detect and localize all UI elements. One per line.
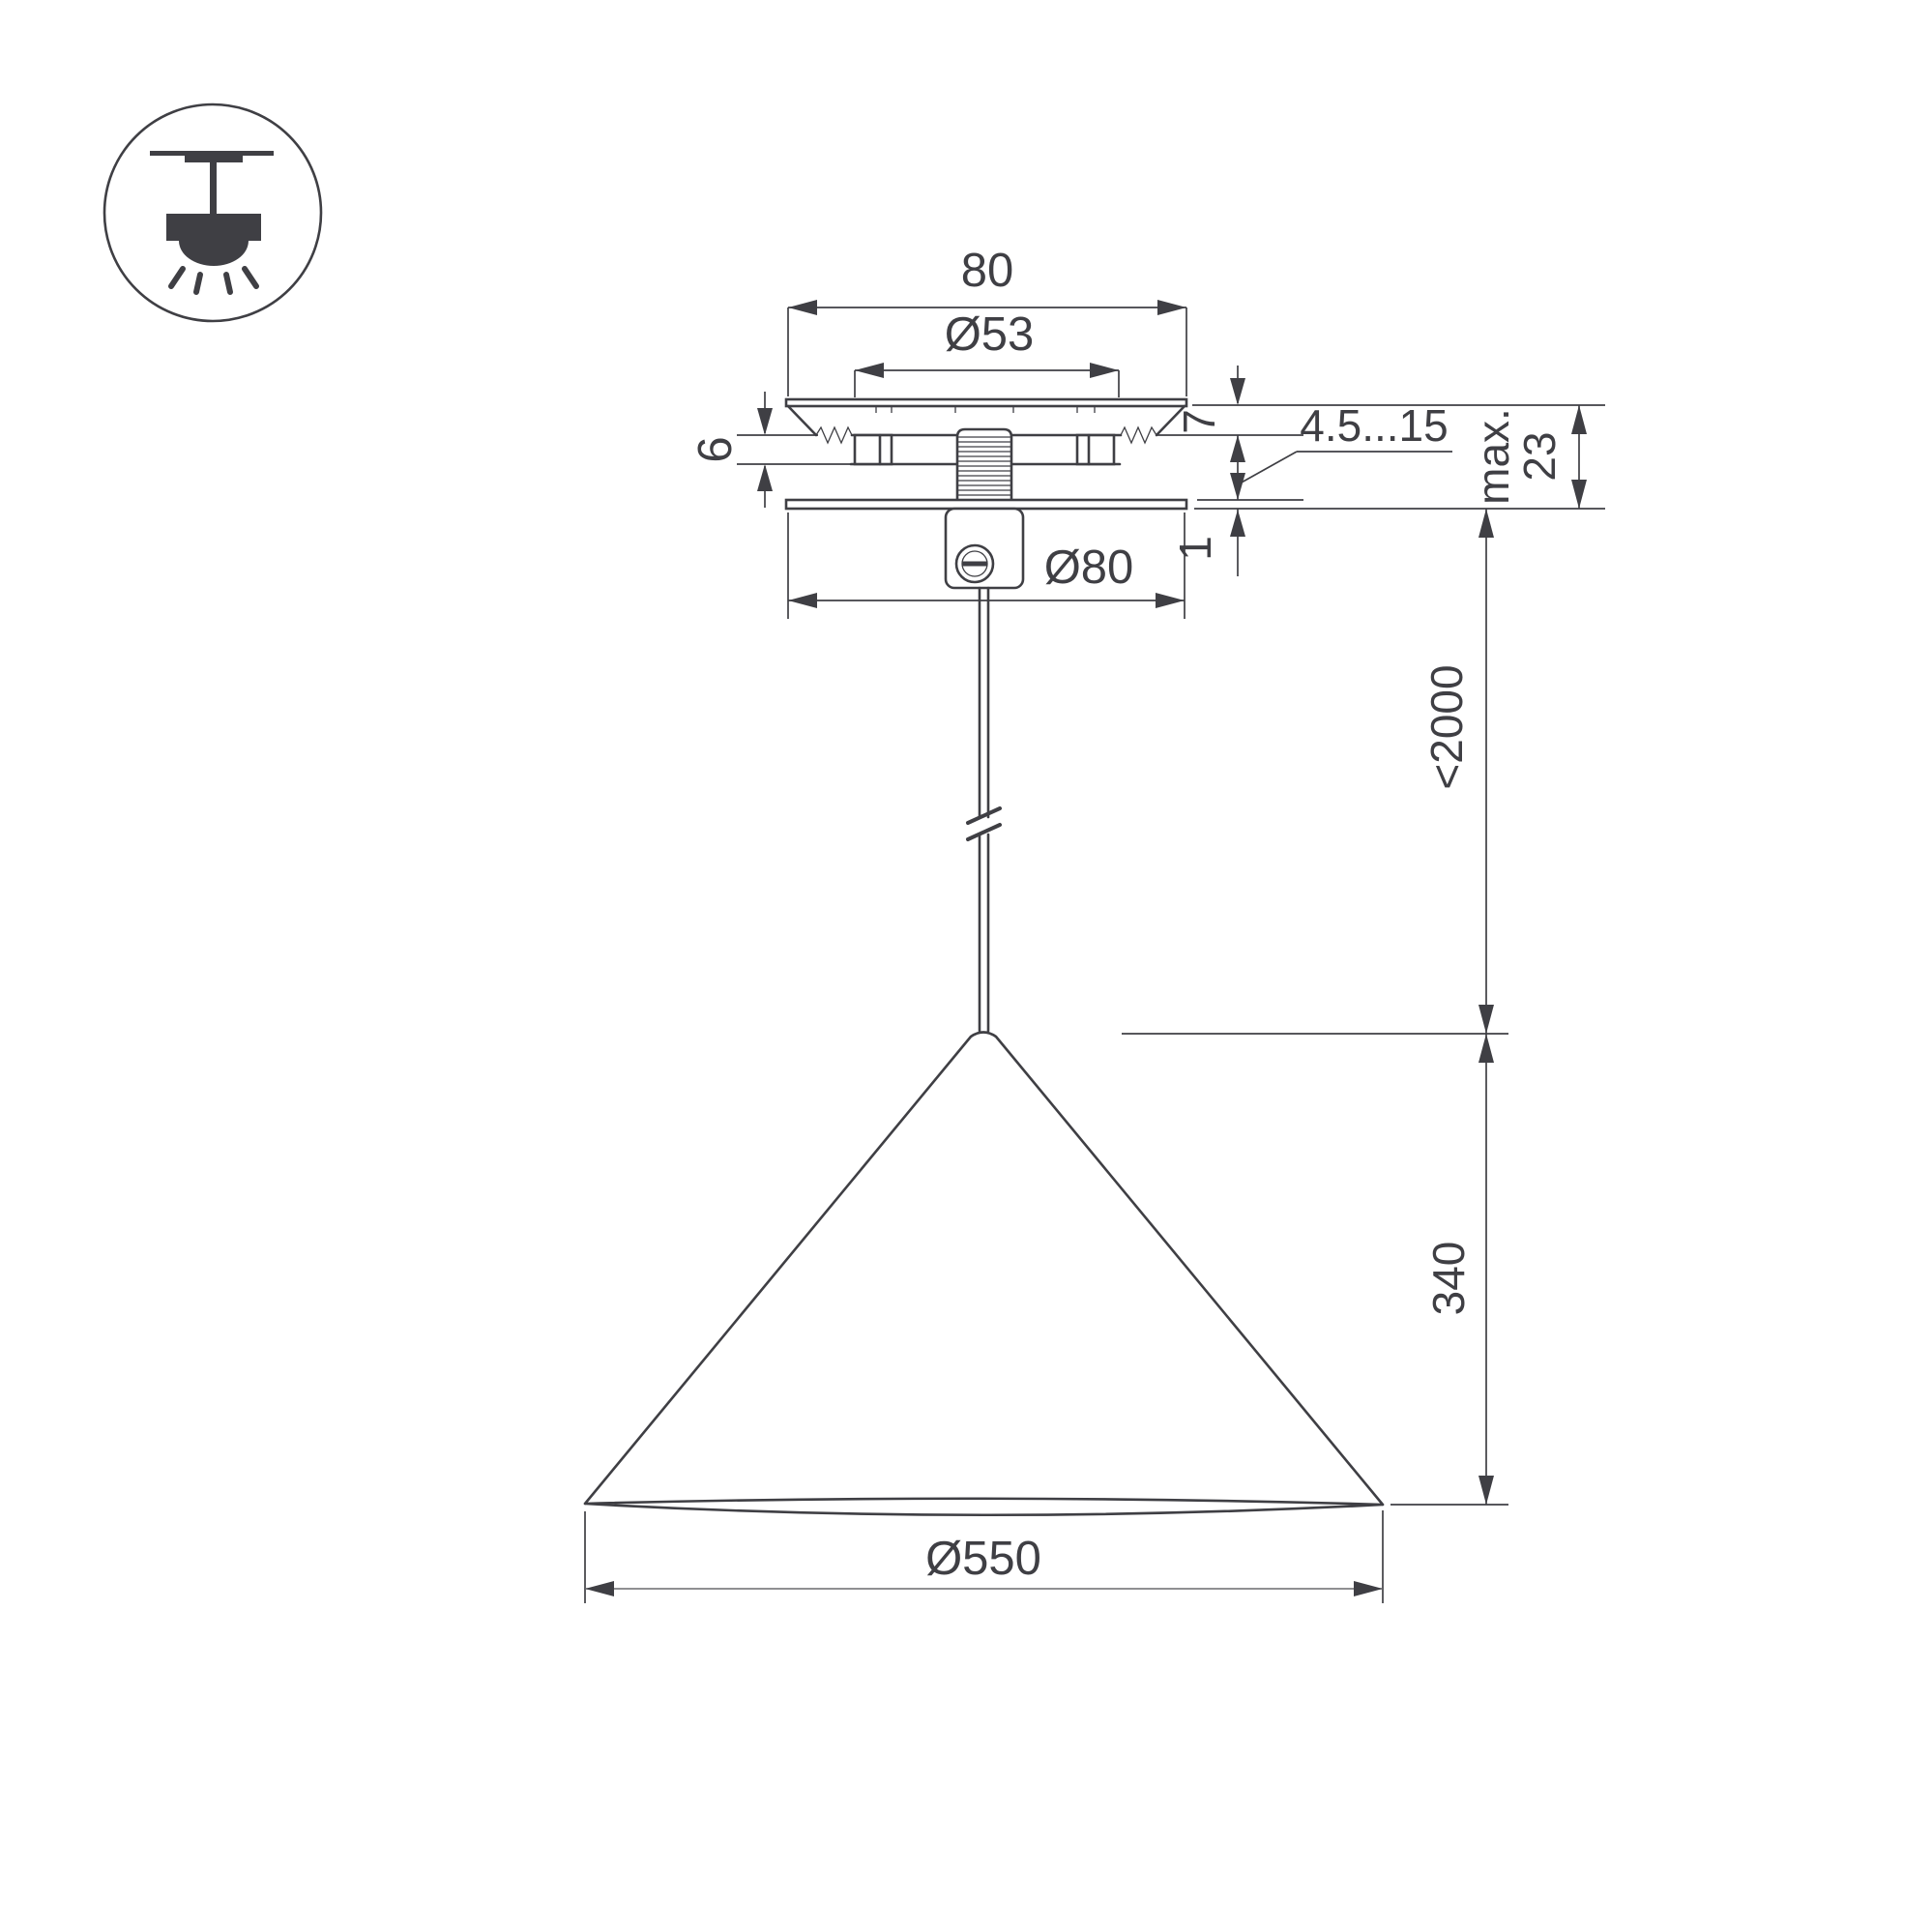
dim-clip-height-label: 6 <box>689 436 742 462</box>
pendant-lamp-icon <box>104 104 321 321</box>
icon-lamp-body <box>166 214 261 241</box>
technical-drawing: 80 Ø53 7 4.5...15 <box>0 0 1932 1932</box>
dim-clip-height: 6 <box>689 392 851 508</box>
trim-skirt-left <box>788 406 816 435</box>
dim-ceiling-thickness: 4.5...15 <box>1230 400 1452 500</box>
icon-stem <box>210 162 217 214</box>
cone-outline <box>585 1033 1383 1506</box>
dim-flange-height-label: 7 <box>1174 409 1224 434</box>
cable-gland <box>946 509 1023 588</box>
dim-plate-thickness: 1 <box>1170 509 1245 576</box>
cone-rim <box>585 1499 1383 1515</box>
spring-clip-symbol-left <box>816 427 852 443</box>
dim-shade-height: 340 <box>1423 1034 1494 1505</box>
threaded-rod <box>957 429 1011 505</box>
spring-clip-symbol-right <box>1121 427 1156 443</box>
icon-mount-plate <box>185 154 243 162</box>
dim-canopy-diameter-label: Ø80 <box>1044 542 1134 594</box>
dim-max-depth: max. 23 <box>1468 405 1587 509</box>
dim-shade-diameter-label: Ø550 <box>925 1533 1041 1585</box>
dim-hole-diameter: Ø53 <box>855 308 1119 397</box>
dim-shade-diameter: Ø550 <box>585 1510 1383 1603</box>
dim-canopy-width-label: 80 <box>961 245 1014 297</box>
dim-cable-length: <2000 <box>1421 509 1494 1034</box>
ceiling-trim-plate <box>786 399 1186 406</box>
dim-ceiling-thickness-label: 4.5...15 <box>1300 400 1448 451</box>
base-plate <box>786 500 1186 509</box>
icon-light-dome <box>179 241 249 266</box>
dim-hole-diameter-label: Ø53 <box>945 308 1035 361</box>
dim-max-depth-prefix-label: max. <box>1468 408 1518 505</box>
drawing-canvas: 80 Ø53 7 4.5...15 <box>0 0 1932 1932</box>
icon-light-rays <box>171 269 256 292</box>
dim-shade-height-label: 340 <box>1423 1242 1474 1316</box>
suspension-cable <box>968 588 1000 1031</box>
cone-shade <box>585 1033 1383 1515</box>
dim-max-depth-value-label: 23 <box>1514 431 1565 481</box>
cable-break-symbol <box>968 808 1000 839</box>
dim-plate-thickness-label: 1 <box>1170 536 1220 561</box>
dim-cable-length-label: <2000 <box>1421 664 1472 789</box>
